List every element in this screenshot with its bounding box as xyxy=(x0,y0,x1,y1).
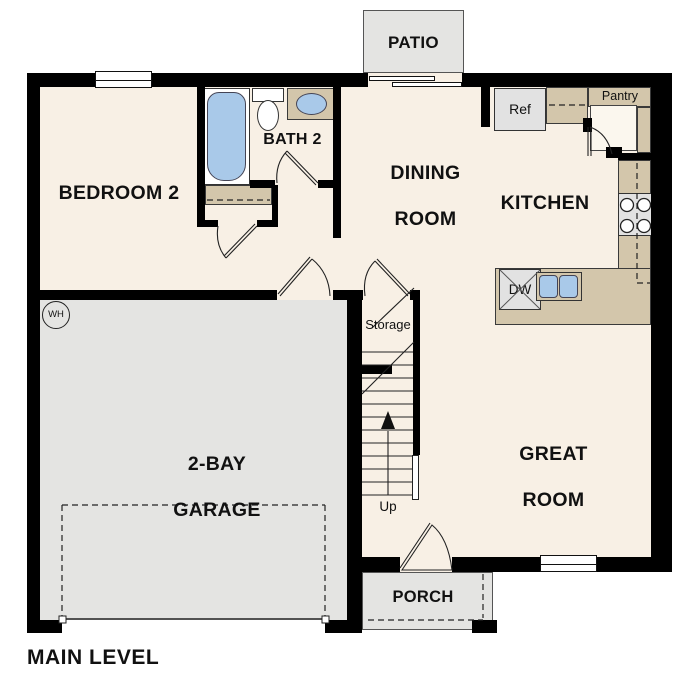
storage-label: Storage xyxy=(362,317,414,332)
dishwasher-x-icon xyxy=(500,270,540,309)
dining-line1: DINING xyxy=(390,162,460,184)
kitchen-label: KITCHEN xyxy=(494,192,596,215)
floor-plan: Ref DW WH xyxy=(0,0,687,687)
up-arrow-icon xyxy=(381,411,395,429)
dining-room-label: DINING ROOM xyxy=(363,139,465,254)
bedroom2-label: BEDROOM 2 xyxy=(40,182,198,205)
pantry-label: Pantry xyxy=(592,89,648,104)
dining-line2: ROOM xyxy=(395,208,457,230)
garage-door-line xyxy=(59,616,329,623)
up-label: Up xyxy=(368,499,408,515)
great-room-label: GREAT ROOM xyxy=(492,420,592,535)
linework-overlay xyxy=(0,0,687,687)
patio-label: PATIO xyxy=(363,33,464,53)
porch-label: PORCH xyxy=(362,588,484,607)
garage-line2: GARAGE xyxy=(173,499,260,521)
great-line2: ROOM xyxy=(523,489,585,511)
stove-burners xyxy=(621,199,651,233)
patio-slider-panel-2 xyxy=(392,82,462,87)
garage-line1: 2-BAY xyxy=(188,453,246,475)
bath2-label: BATH 2 xyxy=(245,131,340,150)
patio-slider-panel-1 xyxy=(369,76,435,81)
garage-label: 2-BAY GARAGE xyxy=(128,430,283,545)
great-line1: GREAT xyxy=(519,443,587,465)
front-door-swing xyxy=(402,525,452,570)
main-level-label: MAIN LEVEL xyxy=(27,646,247,671)
